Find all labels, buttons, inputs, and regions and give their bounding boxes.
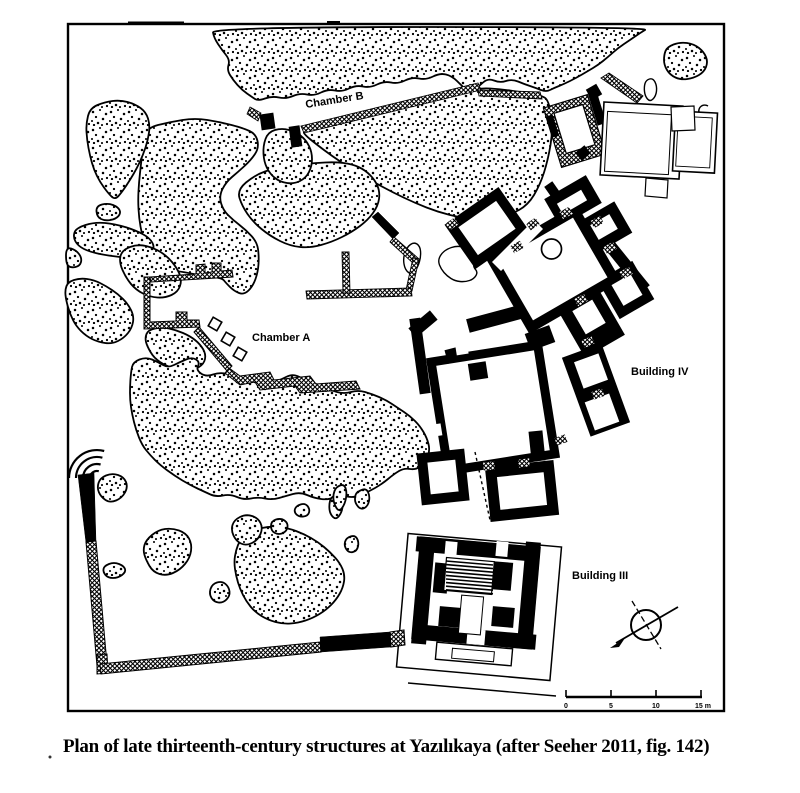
svg-text:Chamber A: Chamber A [252,332,310,344]
svg-text:5: 5 [609,703,613,710]
svg-text:15 m: 15 m [695,703,711,710]
svg-text:Plan of late thirteenth-centur: Plan of late thirteenth-century structur… [63,736,709,757]
svg-text:0: 0 [564,703,568,710]
svg-text:Building III: Building III [572,570,628,582]
svg-text:Building IV: Building IV [631,366,689,378]
svg-text:10: 10 [652,703,660,710]
